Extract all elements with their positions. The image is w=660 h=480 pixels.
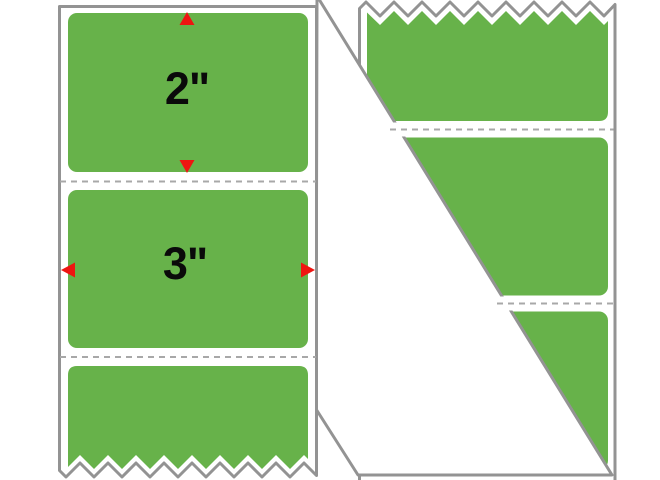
diagram-canvas: 2" 3" <box>0 0 660 480</box>
front-label-3 <box>68 366 308 469</box>
back-label-1 <box>367 11 608 121</box>
width-dimension-text: 3" <box>163 238 207 289</box>
height-dimension-text: 2" <box>165 63 209 114</box>
label-product-diagram: 2" 3" <box>0 0 660 480</box>
front-label-strip: 2" 3" <box>60 7 317 478</box>
